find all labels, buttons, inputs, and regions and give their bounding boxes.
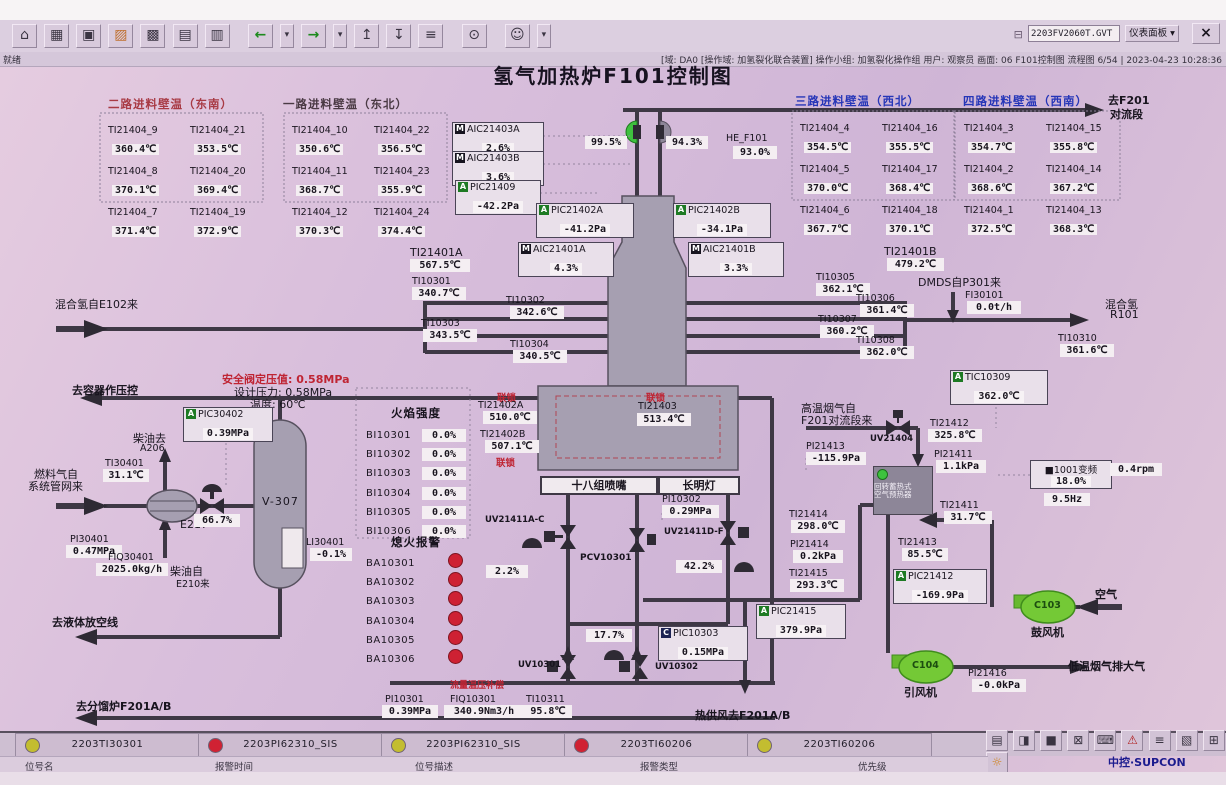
motor-icon: ■	[1045, 465, 1054, 476]
flameout-alarm-indicator	[448, 553, 463, 568]
field-priority: 优先级	[858, 759, 887, 773]
uv21404-valve	[886, 410, 910, 436]
uv10302-label: UV10302	[655, 662, 698, 672]
page-title: 氢气加热炉F101控制图	[0, 60, 1226, 89]
to-f201ab-label: 去分馏炉F201A/B	[76, 698, 171, 714]
air-label: 空气	[1095, 586, 1117, 602]
value-FIQ30401: 2025.0kg/h	[96, 563, 168, 576]
v307-level-window	[282, 528, 303, 568]
supcon-logo: 中控·SUPCON	[1108, 754, 1186, 770]
screen-file-input[interactable]	[1028, 25, 1120, 42]
air-preheater[interactable]: 回转蓄热式 空气预热器	[873, 466, 933, 515]
forward-icon[interactable]: →	[301, 24, 326, 48]
pcv10301-label: PCV10301	[580, 553, 631, 563]
vfd-rpm: 0.4rpm	[1110, 463, 1162, 476]
uv21411ac-label: UV21411A-C	[485, 515, 544, 525]
mode-badge: A	[896, 571, 906, 581]
mode-badge: A	[759, 606, 769, 616]
mode-badge: A	[676, 205, 686, 215]
flameout-alarm-indicator	[448, 572, 463, 587]
wall-header-4: 四路进料壁温（西南）	[963, 93, 1088, 109]
faceplate-PIC21402A[interactable]: APIC21402A -41.2Pa	[536, 203, 634, 238]
wall-cell: TI21404_9360.4℃	[108, 118, 190, 156]
stack-damper-left-output: 99.5%	[585, 136, 627, 149]
faceplate-1001-vfd[interactable]: ■1001变频 18.0%	[1030, 460, 1112, 489]
operator-icon[interactable]: ☺	[505, 24, 530, 48]
tag-FI30101: FI30101	[965, 290, 1004, 301]
tag-LI30401: LI30401	[306, 537, 344, 548]
alarm-tray: ▤ ◨ ■ ⊠ ⌨ ⚠ ≡ ▧ ⊞ ☼	[986, 729, 1226, 773]
mode-badge: A	[186, 409, 196, 419]
faceplate-PIC21415[interactable]: APIC21415 379.9Pa	[756, 604, 846, 639]
diesel-to-label2: A206	[140, 443, 165, 454]
alarm-entry[interactable]: 2203TI60206	[747, 733, 932, 757]
field-alarmtype: 报警类型	[640, 759, 678, 773]
tag-TI10308: TI10308	[856, 335, 895, 346]
tag-TI10307: TI10307	[818, 314, 857, 325]
top-margin	[0, 0, 1226, 20]
wall-table-2: TI21404_9360.4℃ TI21404_21353.5℃ TI21404…	[100, 113, 271, 238]
tag-PI21413: PI21413	[806, 441, 845, 452]
wall-cell: TI21404_16355.5℃	[882, 116, 963, 154]
tag-TI10302: TI10302	[506, 295, 545, 306]
value-PI10301: 0.39MPa	[382, 705, 438, 718]
value-PI21413: -115.9Pa	[806, 452, 866, 465]
fuel-valve	[200, 484, 224, 514]
fire-row: BI103040.0%	[366, 481, 466, 500]
alarm-dot	[25, 738, 40, 753]
c103-label: C103	[1034, 600, 1061, 611]
tag-TI10310: TI10310	[1058, 333, 1097, 344]
alarm-entry[interactable]: 2203PI62310_SIS	[198, 733, 383, 757]
tag-TI10303: TI10303	[421, 318, 460, 329]
fire-row: BI103050.0%	[366, 500, 466, 519]
flameout-row: BA10303	[366, 589, 463, 608]
value-TI30401: 31.1℃	[103, 469, 149, 482]
pcv10301-valve	[629, 528, 656, 552]
value-TI21415: 293.3℃	[790, 579, 844, 592]
tag-PI21416: PI21416	[968, 668, 1007, 679]
flameout-alarm-indicator	[448, 611, 463, 626]
nozzle-group-box: 十八组喷嘴	[540, 476, 658, 495]
value-TI10304: 340.5℃	[513, 350, 567, 363]
wall-cell: TI21404_1372.5℃	[964, 198, 1046, 236]
wall-table-4: TI21404_3354.7℃ TI21404_15355.8℃ TI21404…	[956, 111, 1127, 236]
wall-cell: TI21404_19372.9℃	[190, 200, 271, 238]
value-FI30101: 0.0t/h	[967, 301, 1021, 314]
faceplate-AIC21401A[interactable]: MAIC21401A 4.3%	[518, 242, 614, 277]
mode-badge: M	[455, 153, 465, 163]
report-view-icon[interactable]: ▥	[205, 24, 230, 48]
burner-b-output: 17.7%	[586, 629, 632, 642]
alarm-dot	[208, 738, 223, 753]
window-layout-icon[interactable]: ⊞	[1203, 730, 1225, 751]
fire-row: BI103020.0%	[366, 442, 466, 461]
run-indicator	[877, 469, 888, 480]
wall-cell: TI21404_22356.5℃	[374, 118, 455, 156]
tag-TI21401A: TI21401A	[410, 246, 462, 259]
flameout-row: BA10306	[366, 647, 463, 666]
flue-out-label: 低温烟气排大气	[1068, 658, 1145, 674]
tag-TI21411: TI21411	[940, 500, 979, 511]
tag-TI21402B: TI21402B	[480, 429, 525, 440]
operator-more-icon[interactable]: ▾	[537, 24, 551, 48]
tag-PI21414: PI21414	[790, 539, 829, 550]
tag-TI21403: TI21403	[638, 401, 677, 412]
alarm-lamp-icon[interactable]: ☼	[986, 752, 1008, 773]
tag-TI21413: TI21413	[898, 537, 937, 548]
value-TI10310: 361.6℃	[1060, 344, 1114, 357]
scada-screen: ⌂ ▦ ▣ ▨ ▩ ▤ ▥ ← ▾ → ▾ ↥ ↧ ≡ ⊙ ☺ ▾ ⊟ 仪表面板…	[0, 0, 1226, 785]
fire-row: BI103010.0%	[366, 423, 466, 442]
keyboard-icon[interactable]: ⌨	[1094, 730, 1116, 751]
tag-TI21415: TI21415	[789, 568, 828, 579]
furnace-view-icon[interactable]: ▨	[108, 24, 133, 48]
dmds-label: DMDS自P301来	[918, 274, 1001, 290]
value-TI10302: 342.6℃	[510, 306, 564, 319]
wall-table-3: TI21404_4354.5℃ TI21404_16355.5℃ TI21404…	[792, 111, 963, 236]
mode-badge: A	[953, 372, 963, 382]
to-f201-label2: 对流段	[1110, 106, 1143, 122]
h2-in-label: 混合氢自E102来	[55, 296, 138, 312]
faceplate-TIC10309[interactable]: ATIC10309 362.0℃	[950, 370, 1048, 405]
flameout-row: BA10301	[366, 551, 463, 570]
wall-cell: TI21404_8370.1℃	[108, 159, 190, 197]
flameout-header: 熄火报警	[391, 534, 441, 550]
value-TI21414: 298.0℃	[791, 520, 845, 533]
burner-b-positioner	[604, 650, 624, 660]
tag-HE_F101: HE_F101	[726, 133, 768, 144]
flameout-row: BA10305	[366, 628, 463, 647]
value-TI10308: 362.0℃	[860, 346, 914, 359]
wall-cell: TI21404_12370.3℃	[292, 200, 374, 238]
value-HE_F101: 93.0%	[733, 146, 777, 159]
tag-TI10305: TI10305	[816, 272, 855, 283]
pilot-burner-box: 长明灯	[658, 476, 740, 495]
wall-header-1: 一路进料壁温（东北）	[283, 96, 408, 112]
wall-cell: TI21404_11368.7℃	[292, 159, 374, 197]
mode-badge: M	[691, 244, 701, 254]
wall-cell: TI21404_4354.5℃	[800, 116, 882, 154]
back-icon[interactable]: ←	[248, 24, 273, 48]
pilot-positioner	[734, 562, 754, 572]
flameout-row: BA10304	[366, 609, 463, 628]
mode-badge: A	[458, 182, 468, 192]
inducer-label: 引风机	[904, 684, 937, 700]
wall-header-2: 二路进料壁温（东南）	[108, 96, 233, 112]
tag-FIQ30401: FIQ30401	[108, 552, 154, 563]
flow-view-icon[interactable]: ▣	[76, 24, 101, 48]
chevron-down-icon: ▾	[1170, 28, 1175, 39]
uv21404-label: UV21404	[870, 434, 913, 444]
c104-label: C104	[912, 660, 939, 671]
tag-PI21411: PI21411	[934, 449, 973, 460]
page-down-icon[interactable]: ↧	[386, 24, 411, 48]
uv21411df-valve	[720, 521, 749, 545]
alarm-screen-icon[interactable]: ⊠	[1067, 730, 1089, 751]
wall-cell: TI21404_23355.9℃	[374, 159, 455, 197]
page-up-icon[interactable]: ↥	[354, 24, 379, 48]
alarm-dot	[574, 738, 589, 753]
value-TI10301: 340.7℃	[412, 287, 466, 300]
flameout-row: BA10302	[366, 570, 463, 589]
value-TI10303: 343.5℃	[423, 329, 477, 342]
wall-cell: TI21404_2368.6℃	[964, 157, 1046, 195]
find-icon[interactable]: ⊙	[462, 24, 487, 48]
mode-badge: M	[521, 244, 531, 254]
burner-a-output: 2.2%	[486, 565, 528, 578]
value-PI21414: 0.2kPa	[793, 550, 843, 563]
value-TI10306: 361.4℃	[860, 304, 914, 317]
tag-TI10306: TI10306	[856, 293, 895, 304]
wall-cell: TI21404_14367.2℃	[1046, 157, 1127, 195]
value-TI21412: 325.8℃	[928, 429, 982, 442]
wall-cell: TI21404_5370.0℃	[800, 157, 882, 195]
fuel-valve-output: 66.7%	[194, 514, 240, 527]
tag-TI21414: TI21414	[789, 509, 828, 520]
wall-cell: TI21404_13368.3℃	[1046, 198, 1127, 236]
fuelgas-label2: 系统管网来	[28, 478, 83, 494]
wall-cell: TI21404_21353.5℃	[190, 118, 271, 156]
value-PI10302: 0.29MPa	[662, 505, 719, 518]
r101-label: R101	[1110, 308, 1139, 321]
faceplate-PIC21409[interactable]: APIC21409 -42.2Pa	[455, 180, 541, 215]
back-more-icon[interactable]: ▾	[280, 24, 294, 48]
to-vessel-label: 去容器作压控	[72, 382, 138, 398]
alarm-dot	[757, 738, 772, 753]
blower-label: 鼓风机	[1031, 624, 1064, 640]
alarm-list-icon[interactable]: ≡	[1149, 730, 1171, 751]
value-TI10311: 95.8℃	[524, 705, 572, 718]
overview-icon[interactable]: ▦	[44, 24, 69, 48]
tag-TI21401B: TI21401B	[884, 245, 937, 258]
bottom-margin	[0, 772, 1226, 785]
to-flare-label: 去液体放空线	[52, 614, 118, 630]
wall-cell: TI21404_10350.6℃	[292, 118, 374, 156]
mode-badge: M	[455, 124, 465, 134]
value-PI21416: -0.0kPa	[972, 679, 1026, 692]
file-icon: ⊟	[1014, 28, 1023, 41]
alarm-entry[interactable]: 2203PI62310_SIS	[381, 733, 566, 757]
tag-TI10311: TI10311	[526, 694, 565, 705]
trend-view-icon[interactable]: ▤	[173, 24, 198, 48]
wall-cell: TI21404_18370.1℃	[882, 198, 963, 236]
close-button[interactable]: ×	[1192, 23, 1220, 44]
interlock-label: 联锁	[496, 455, 515, 469]
faceplate-AIC21401B[interactable]: MAIC21401B 3.3%	[688, 242, 784, 277]
fire-row: BI103030.0%	[366, 461, 466, 480]
faceplate-PIC30402[interactable]: APIC30402 0.39MPa	[183, 407, 273, 442]
mode-badge: C	[661, 628, 671, 638]
flameout-alarm-indicator	[448, 649, 463, 664]
printer-icon[interactable]: ▤	[986, 730, 1008, 751]
mode-badge: A	[539, 205, 549, 215]
alarm-field-row: 位号名 报警时间 位号描述 报警类型 优先级	[0, 756, 988, 773]
tag-TI30401: TI30401	[105, 458, 144, 469]
wall-header-3: 三路进料壁温（西北）	[795, 93, 920, 109]
wall-cell: TI21404_6367.7℃	[800, 198, 882, 236]
value-TI21402B: 507.1℃	[485, 440, 539, 453]
value-TI21413: 85.5℃	[902, 548, 948, 561]
hot-air-label: 热供风去F201A/B	[695, 707, 790, 723]
tag-TI10301: TI10301	[412, 276, 451, 287]
faceplate-PIC10303[interactable]: CPIC10303 0.15MPa	[658, 626, 748, 661]
value-LI30401: -0.1%	[310, 548, 352, 561]
faceplate-PIC21412[interactable]: APIC21412 -169.9Pa	[893, 569, 987, 604]
uv21411ac-valve	[544, 525, 576, 549]
wall-cell: TI21404_3354.7℃	[964, 116, 1046, 154]
fire-list: BI103010.0% BI103020.0% BI103030.0% BI10…	[366, 423, 466, 538]
value-TI21402A: 510.0℃	[483, 411, 537, 424]
tag-PI10301: PI10301	[385, 694, 424, 705]
hot-flue-label2: F201对流段来	[801, 412, 872, 428]
value-PI21411: 1.1kPa	[936, 460, 986, 473]
faceplate-PIC21402B[interactable]: APIC21402B -34.1Pa	[673, 203, 771, 238]
wall-table-1: TI21404_10350.6℃ TI21404_22356.5℃ TI2140…	[284, 113, 455, 238]
uv10301-label: UV10301	[518, 660, 561, 670]
field-alarmtime: 报警时间	[215, 759, 253, 773]
screen-icon[interactable]: ■	[1040, 730, 1062, 751]
value-TI21403: 513.4℃	[637, 413, 691, 426]
home-icon[interactable]: ⌂	[12, 24, 37, 48]
pilot-output: 42.2%	[676, 560, 722, 573]
uv21411df-label: UV21411D-F	[664, 527, 724, 537]
group-view-icon[interactable]: ▩	[140, 24, 165, 48]
wall-cell: TI21404_20369.4℃	[190, 159, 271, 197]
compensation-label: 流量温压补偿	[450, 678, 504, 691]
field-tagname: 位号名	[25, 759, 54, 773]
flameout-list: BA10301 BA10302 BA10303 BA10304 BA10305 …	[366, 551, 463, 666]
stack-damper-right-output: 94.3%	[666, 136, 708, 149]
wall-cell: TI21404_17368.4℃	[882, 157, 963, 195]
wall-cell: TI21404_7371.4℃	[108, 200, 190, 238]
main-toolbar: ⌂ ▦ ▣ ▨ ▩ ▤ ▥ ← ▾ → ▾ ↥ ↧ ≡ ⊙ ☺ ▾ ⊟ 仪表面板…	[0, 20, 1226, 53]
forward-more-icon[interactable]: ▾	[333, 24, 347, 48]
value-TI21401B: 479.2℃	[887, 258, 944, 271]
alarm-dot	[391, 738, 406, 753]
value-FIQ10301: 340.9Nm3/h	[444, 705, 524, 718]
tag-TI21412: TI21412	[930, 418, 969, 429]
fire-header: 火焰强度	[391, 405, 441, 421]
panel-select[interactable]: 仪表面板 ▾	[1125, 25, 1179, 42]
unlock-icon[interactable]: ◨	[1013, 730, 1035, 751]
tag-TI21402A: TI21402A	[478, 400, 523, 411]
log-icon[interactable]: ≡	[418, 24, 443, 48]
tag-TI10304: TI10304	[510, 339, 549, 350]
value-TI21401A: 567.5℃	[410, 259, 470, 272]
burner-a-positioner	[522, 538, 542, 548]
tag-FIQ10301: FIQ10301	[450, 694, 496, 705]
flameout-alarm-indicator	[448, 591, 463, 606]
vfd-hz: 9.5Hz	[1044, 493, 1090, 506]
flameout-alarm-indicator	[448, 630, 463, 645]
alarm-bell-icon[interactable]: ⚠	[1121, 730, 1143, 751]
diesel-from-label2: E210来	[176, 576, 210, 590]
v307-label: V-307	[262, 495, 299, 508]
tag-PI10302: PI10302	[662, 494, 701, 505]
report-page-icon[interactable]: ▧	[1176, 730, 1198, 751]
alarm-entry[interactable]: 2203TI60206	[564, 733, 749, 757]
alarm-entry[interactable]: 2203TI30301	[15, 733, 200, 757]
tag-PI30401: PI30401	[70, 534, 109, 545]
wall-cell: TI21404_24374.4℃	[374, 200, 455, 238]
value-TI21411: 31.7℃	[944, 511, 992, 524]
field-description: 位号描述	[415, 759, 453, 773]
